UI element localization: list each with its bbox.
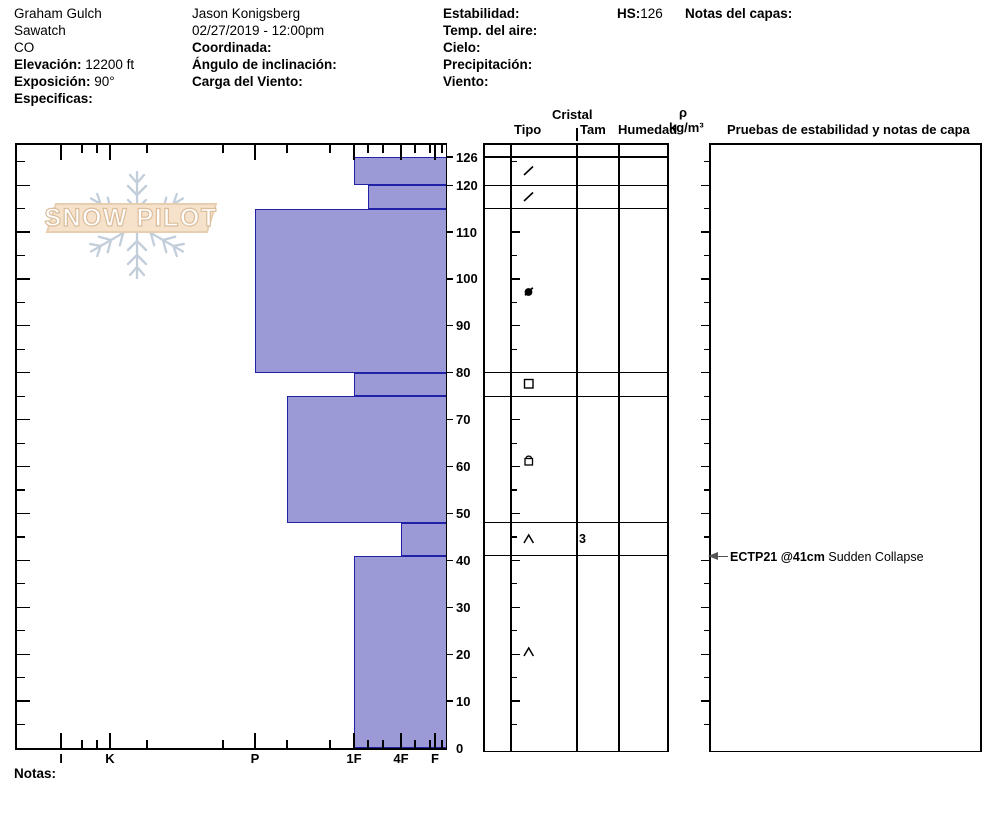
hardness-minor-tick-bottom-10: [441, 740, 442, 748]
crystal-header: Cristal: [552, 107, 592, 122]
snow-layer-bar-48-41: [401, 523, 447, 556]
hardness-axis-label-4F: 4F: [393, 751, 408, 766]
hardness-tick-top-F: [434, 145, 435, 160]
depth-tick-80: [17, 372, 30, 373]
layer-notes-label: Notas del capas:: [685, 5, 792, 22]
snow-layer-bar-126-120: [354, 157, 447, 185]
table-vline-right: [980, 143, 982, 752]
density-depth-tick-80: [701, 372, 709, 373]
depth-tick-115: [17, 208, 25, 209]
tipo-depth-tick-120: [512, 185, 520, 186]
depth-tick-outer-50: [447, 513, 453, 514]
density-depth-tick-100: [701, 278, 709, 279]
tipo-depth-tick-40: [512, 560, 520, 561]
table-vline-humedad: [618, 143, 620, 752]
depth-tick-30: [17, 607, 30, 608]
tipo-depth-tick-35: [512, 583, 517, 584]
snow-layer-bar-75-48: [287, 396, 447, 523]
grain-type-symbol-DH: [520, 530, 538, 548]
tipo-depth-tick-90: [512, 325, 520, 326]
depth-tick-outer-30: [447, 607, 453, 608]
hardness-tick-bottom-1F: [353, 733, 354, 748]
tipo-depth-tick-60: [512, 466, 520, 467]
table-vline-left: [483, 143, 485, 752]
tipo-depth-tick-5: [512, 724, 517, 725]
table-border-bottom-right: [709, 751, 981, 753]
hardness-axis-label-K: K: [105, 751, 114, 766]
tipo-depth-tick-75: [512, 396, 517, 397]
depth-tick-outer-20: [447, 654, 453, 655]
grain-type-symbol-FC: [520, 375, 538, 393]
hardness-minor-tick-bottom-6: [367, 740, 368, 748]
depth-axis-label-70: 70: [456, 412, 470, 427]
depth-tick-120: [17, 185, 30, 186]
grain-type-symbol-RGxf: [520, 282, 538, 300]
hardness-minor-tick-top-3: [222, 145, 223, 153]
depth-tick-75: [17, 396, 25, 397]
depth-tick-25: [17, 630, 25, 631]
depth-tick-outer-110: [447, 231, 453, 232]
hardness-minor-tick-bottom-0: [81, 740, 82, 748]
depth-axis-label-110: 110: [456, 225, 477, 240]
specifics-label: Especificas:: [14, 90, 93, 107]
table-border-top-right: [709, 143, 981, 145]
hs-value: 126: [640, 6, 663, 21]
hardness-axis-label-P: P: [251, 751, 260, 766]
notes-label: Notas:: [14, 766, 56, 781]
hardness-tick-top-I: [60, 145, 61, 160]
hardness-minor-tick-top-5: [329, 145, 330, 153]
table-vline-density-right: [709, 143, 711, 752]
depth-tick-55: [17, 489, 25, 490]
hardness-minor-tick-top-2: [146, 145, 147, 153]
chart-border-right: [446, 143, 448, 750]
hs-label: HS:: [617, 6, 640, 21]
snow-height: HS:126: [617, 5, 663, 22]
hardness-minor-tick-bottom-8: [414, 740, 415, 748]
hardness-minor-tick-bottom-2: [146, 740, 147, 748]
hardness-tick-bottom-K: [109, 733, 110, 748]
hardness-tick-bottom-I: [60, 733, 61, 748]
table-vline-density-left: [667, 143, 669, 752]
grain-type-symbol-DF: [520, 162, 538, 180]
depth-tick-50: [17, 513, 30, 514]
depth-tick-outer-90: [447, 325, 453, 326]
site-elevation: Elevación: 12200 ft: [14, 56, 134, 73]
elevation-label: Elevación:: [14, 57, 82, 72]
depth-tick-outer-40: [447, 560, 453, 561]
wind-label: Viento:: [443, 73, 489, 90]
snow-layer-bar-115-80: [255, 209, 447, 373]
density-depth-tick-30: [701, 607, 709, 608]
precipitation-label: Precipitación:: [443, 56, 532, 73]
chart-border-bottom: [15, 748, 447, 750]
tipo-depth-tick-110: [512, 231, 520, 232]
slope-angle-label: Ángulo de inclinación:: [192, 56, 337, 73]
snow-layer-bar-120-115: [368, 185, 447, 208]
density-depth-tick-110: [701, 231, 709, 232]
depth-tick-45: [17, 536, 25, 537]
tipo-depth-tick-55: [512, 489, 517, 490]
test-comment: Sudden Collapse: [828, 550, 923, 564]
grain-type-symbol-DF: [520, 188, 538, 206]
density-symbol: ρ: [679, 105, 687, 120]
depth-axis-label-120: 120: [456, 178, 478, 193]
stability-test-annotation: ECTP21 @41cm Sudden Collapse: [730, 550, 924, 564]
depth-axis-label-30: 30: [456, 600, 470, 615]
depth-axis-label-50: 50: [456, 506, 470, 521]
hardness-minor-tick-top-8: [414, 145, 415, 153]
hardness-minor-tick-bottom-9: [429, 740, 430, 748]
tipo-depth-tick-10: [512, 700, 520, 701]
tipo-depth-tick-95: [512, 302, 517, 303]
density-depth-tick-10: [701, 700, 709, 701]
site-state: CO: [14, 39, 34, 56]
depth-tick-105: [17, 255, 25, 256]
hardness-minor-tick-top-10: [441, 145, 442, 153]
hardness-minor-tick-top-1: [96, 145, 97, 153]
depth-tick-outer-60: [447, 466, 453, 467]
table-vline-tipo: [510, 143, 512, 752]
tipo-depth-tick-15: [512, 677, 517, 678]
hardness-tick-bottom-P: [254, 733, 255, 748]
stability-label: Estabilidad:: [443, 5, 520, 22]
hardness-tick-bottom-F: [434, 733, 435, 748]
hardness-tick-top-1F: [353, 145, 354, 160]
depth-tick-outer-10: [447, 700, 453, 701]
density-unit: kg/m³: [669, 120, 704, 135]
tipo-depth-tick-115: [512, 208, 517, 209]
tipo-depth-tick-50: [512, 513, 520, 514]
depth-tick-100: [17, 278, 30, 279]
density-depth-tick-50: [701, 513, 709, 514]
depth-tick-20: [17, 654, 30, 655]
tipo-depth-tick-80: [512, 372, 520, 373]
depth-tick-outer-100: [447, 278, 453, 279]
hardness-minor-tick-top-7: [382, 145, 383, 153]
hardness-minor-tick-bottom-1: [96, 740, 97, 748]
hardness-minor-tick-bottom-3: [222, 740, 223, 748]
tipo-depth-tick-30: [512, 607, 520, 608]
depth-axis-label-126: 126: [456, 150, 478, 165]
hardness-minor-tick-top-0: [81, 145, 82, 153]
density-depth-tick-90: [701, 325, 709, 326]
tipo-header: Tipo: [514, 122, 541, 137]
grain-size-value: 3: [579, 532, 586, 546]
tipo-depth-tick-70: [512, 419, 520, 420]
depth-tick-15: [17, 677, 25, 678]
hardness-minor-tick-bottom-7: [382, 740, 383, 748]
aspect-value: 90°: [94, 74, 114, 89]
hardness-axis-label-I: I: [59, 751, 63, 766]
header-divider-tick: [576, 128, 578, 141]
depth-tick-85: [17, 349, 25, 350]
snowpilot-logo: SNOW PILOT: [40, 166, 235, 291]
snow-layer-bar-41-0: [354, 556, 447, 748]
depth-tick-outer-126: [447, 156, 453, 157]
depth-tick-40: [17, 560, 30, 561]
test-arrow-line: [717, 556, 728, 558]
depth-tick-5: [17, 724, 25, 725]
elevation-value: 12200 ft: [85, 57, 134, 72]
site-range: Sawatch: [14, 22, 66, 39]
depth-tick-65: [17, 443, 25, 444]
depth-tick-outer-80: [447, 372, 453, 373]
snow-layer-bar-80-75: [354, 373, 447, 396]
tipo-depth-tick-45: [512, 536, 517, 537]
depth-tick-10: [17, 700, 30, 701]
wind-loading-label: Carga del Viento:: [192, 73, 303, 90]
depth-tick-70: [17, 419, 30, 420]
depth-axis-label-40: 40: [456, 553, 470, 568]
depth-axis-label-10: 10: [456, 694, 470, 709]
depth-tick-110: [17, 231, 30, 232]
depth-axis-label-100: 100: [456, 271, 478, 286]
depth-axis-label-80: 80: [456, 365, 470, 380]
snowpilot-profile-page: Graham Gulch Sawatch CO Elevación: 12200…: [0, 0, 994, 840]
tipo-depth-tick-125: [512, 161, 517, 162]
sky-label: Cielo:: [443, 39, 481, 56]
density-depth-tick-20: [701, 654, 709, 655]
site-name: Graham Gulch: [14, 5, 102, 22]
hardness-minor-tick-top-4: [286, 145, 287, 153]
chart-border-top: [15, 143, 447, 145]
hardness-tick-top-P: [254, 145, 255, 160]
depth-tick-60: [17, 466, 30, 467]
chart-border-left: [15, 143, 17, 750]
depth-tick-90: [17, 325, 30, 326]
depth-axis-label-0: 0: [456, 741, 463, 756]
observer-name: Jason Konigsberg: [192, 5, 300, 22]
density-depth-tick-70: [701, 419, 709, 420]
tipo-depth-tick-65: [512, 443, 517, 444]
tam-header: Tam: [580, 122, 606, 137]
depth-tick-outer-70: [447, 419, 453, 420]
hardness-axis-label-F: F: [431, 751, 439, 766]
hardness-minor-tick-top-6: [367, 145, 368, 153]
depth-tick-95: [17, 302, 25, 303]
tipo-depth-tick-100: [512, 278, 520, 279]
depth-tick-35: [17, 583, 25, 584]
hardness-axis-label-1F: 1F: [346, 751, 361, 766]
hardness-tick-top-4F: [400, 145, 401, 160]
hardness-minor-tick-bottom-5: [329, 740, 330, 748]
density-depth-tick-120: [701, 185, 709, 186]
hardness-tick-top-K: [109, 145, 110, 160]
grain-type-symbol-DH: [520, 643, 538, 661]
tipo-depth-tick-105: [512, 255, 517, 256]
test-result: ECTP21 @41cm: [730, 550, 825, 564]
tipo-depth-tick-20: [512, 654, 520, 655]
hardness-minor-tick-bottom-4: [286, 740, 287, 748]
depth-axis-label-60: 60: [456, 459, 470, 474]
logo-text: SNOW PILOT: [44, 204, 217, 232]
depth-axis-label-90: 90: [456, 318, 470, 333]
depth-axis-label-20: 20: [456, 647, 470, 662]
depth-tick-outer-120: [447, 185, 453, 186]
tests-header: Pruebas de estabilidad y notas de capa: [727, 122, 970, 137]
aspect-label: Exposición:: [14, 74, 91, 89]
coordinate-label: Coordinada:: [192, 39, 272, 56]
hardness-minor-tick-top-9: [429, 145, 430, 153]
grain-type-symbol-FCxr: [520, 451, 538, 469]
tipo-depth-tick-25: [512, 630, 517, 631]
depth-tick-125: [17, 161, 25, 162]
site-aspect: Exposición: 90°: [14, 73, 115, 90]
density-depth-tick-60: [701, 466, 709, 467]
hardness-tick-bottom-4F: [400, 733, 401, 748]
table-vline-tam: [576, 143, 578, 752]
tipo-depth-tick-85: [512, 349, 517, 350]
pit-datetime: 02/27/2019 - 12:00pm: [192, 22, 324, 39]
air-temp-label: Temp. del aire:: [443, 22, 537, 39]
